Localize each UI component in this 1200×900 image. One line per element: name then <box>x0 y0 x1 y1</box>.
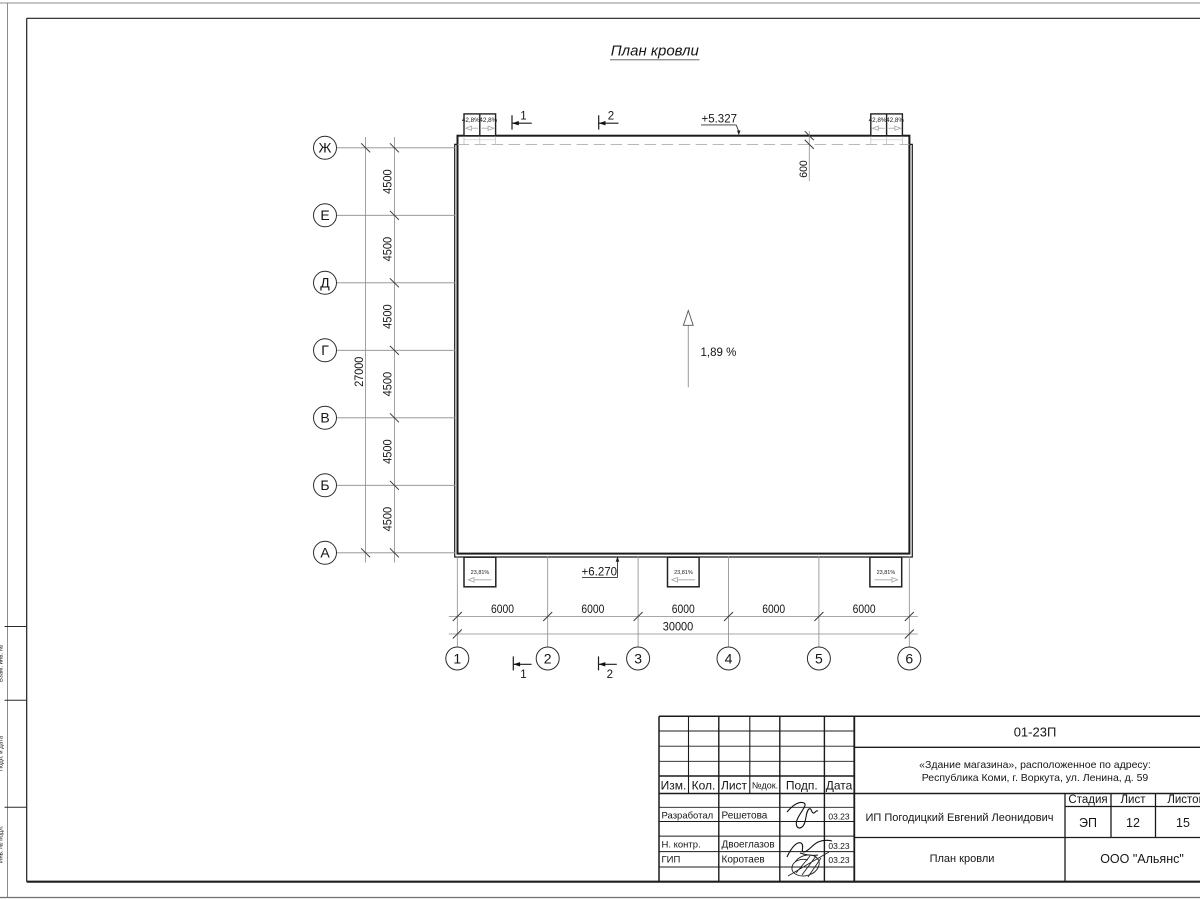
svg-text:ИП Погодицкий Евгений Леонидов: ИП Погодицкий Евгений Леонидович <box>866 812 1054 824</box>
svg-text:15: 15 <box>1176 816 1190 830</box>
svg-text:Б: Б <box>320 477 329 493</box>
svg-text:+6.270: +6.270 <box>582 566 618 578</box>
svg-text:03.23: 03.23 <box>828 811 850 821</box>
svg-text:Дата: Дата <box>826 778 853 792</box>
svg-text:4500: 4500 <box>381 169 395 194</box>
svg-text:4500: 4500 <box>381 304 395 329</box>
svg-text:2: 2 <box>607 669 613 681</box>
svg-text:Лист: Лист <box>721 778 748 792</box>
svg-text:4500: 4500 <box>381 507 395 532</box>
svg-text:23,81%: 23,81% <box>877 570 896 576</box>
svg-text:1: 1 <box>520 110 526 122</box>
svg-text:Подп. и дата: Подп. и дата <box>0 735 5 771</box>
svg-text:23,81%: 23,81% <box>471 570 490 576</box>
svg-text:Е: Е <box>320 207 329 223</box>
svg-text:4500: 4500 <box>381 372 395 397</box>
svg-text:Стадия: Стадия <box>1068 794 1107 806</box>
svg-text:Кол.: Кол. <box>692 778 716 792</box>
svg-text:Н. контр.: Н. контр. <box>662 840 701 851</box>
svg-text:Лист: Лист <box>1121 794 1147 806</box>
svg-text:12: 12 <box>1126 816 1140 830</box>
svg-text:Республика Коми, г. Воркута, у: Республика Коми, г. Воркута, ул. Ленина,… <box>922 772 1149 784</box>
svg-text:ГИП: ГИП <box>662 855 681 866</box>
svg-text:«Здание магазина», расположенн: «Здание магазина», расположенное по адре… <box>919 759 1151 771</box>
svg-text:Решетова: Решетова <box>722 810 768 821</box>
svg-text:600: 600 <box>798 160 810 178</box>
svg-text:1: 1 <box>520 669 526 681</box>
svg-text:4500: 4500 <box>381 439 395 464</box>
svg-text:Взам. инв. №: Взам. инв. № <box>0 645 5 682</box>
svg-text:План кровли: План кровли <box>930 853 995 865</box>
svg-text:01-23П: 01-23П <box>1014 725 1057 740</box>
svg-text:1,89 %: 1,89 % <box>701 347 737 359</box>
svg-text:4500: 4500 <box>381 237 395 262</box>
svg-text:42,8%: 42,8% <box>479 117 497 124</box>
svg-text:03.23: 03.23 <box>828 841 850 851</box>
svg-text:42,8%: 42,8% <box>869 117 887 124</box>
svg-text:Д: Д <box>320 275 330 291</box>
svg-text:6000: 6000 <box>581 602 604 616</box>
svg-text:В: В <box>320 410 329 426</box>
svg-text:30000: 30000 <box>663 619 694 633</box>
svg-text:2: 2 <box>544 650 552 666</box>
svg-text:6000: 6000 <box>853 602 876 616</box>
svg-text:Листов: Листов <box>1167 794 1200 806</box>
svg-text:№док.: №док. <box>752 781 778 791</box>
svg-text:6000: 6000 <box>672 602 695 616</box>
svg-text:42,8%: 42,8% <box>462 117 480 124</box>
svg-text:Двоеглазов: Двоеглазов <box>722 840 775 851</box>
svg-text:27000: 27000 <box>352 356 366 386</box>
svg-text:Изм.: Изм. <box>661 778 687 792</box>
svg-text:4: 4 <box>725 650 733 666</box>
svg-text:Разработал: Разработал <box>662 810 714 821</box>
svg-text:А: А <box>320 545 330 561</box>
svg-text:ЭП: ЭП <box>1079 816 1097 830</box>
svg-text:План кровли: План кровли <box>611 43 700 60</box>
svg-text:42,8%: 42,8% <box>886 117 904 124</box>
svg-text:Г: Г <box>321 342 329 358</box>
svg-text:Инв. № подл.: Инв. № подл. <box>0 825 5 863</box>
svg-text:3: 3 <box>634 650 642 666</box>
svg-text:Коротаев: Коротаев <box>722 855 765 866</box>
svg-text:6000: 6000 <box>762 602 785 616</box>
svg-text:Ж: Ж <box>319 140 332 156</box>
svg-text:+5.327: +5.327 <box>702 114 738 126</box>
svg-text:ООО "Альянс": ООО "Альянс" <box>1100 852 1184 866</box>
svg-text:1: 1 <box>453 650 461 666</box>
svg-text:6000: 6000 <box>491 602 514 616</box>
svg-text:5: 5 <box>815 650 823 666</box>
svg-text:03.23: 03.23 <box>828 855 850 865</box>
svg-text:2: 2 <box>608 110 614 122</box>
svg-text:Подп.: Подп. <box>786 778 818 792</box>
svg-text:23,81%: 23,81% <box>674 570 693 576</box>
svg-text:6: 6 <box>905 650 913 666</box>
